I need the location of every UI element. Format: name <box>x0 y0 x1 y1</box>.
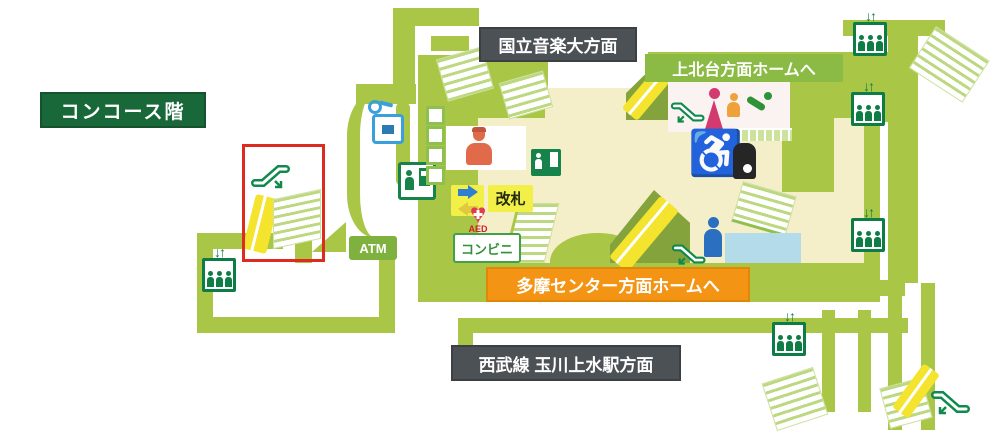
elevator-icon: ↓↑ <box>202 246 236 292</box>
path-segment <box>875 280 905 296</box>
elevator-direction-arrows: ↓↑ <box>865 10 875 22</box>
floor-structure <box>431 36 469 51</box>
convenience-store-label: コンビニ <box>453 233 521 263</box>
station-staff-icon <box>466 127 492 165</box>
platform-banner-kamikitadai: 上北台方面ホームへ <box>645 54 843 82</box>
path-segment <box>858 310 871 412</box>
station-concourse-map: ↓↑ ↓↑ ↓↑ ↓↑ ↓↑ <box>0 0 998 441</box>
elevator-icon: ↓↑ <box>853 10 887 56</box>
heart-icon: ♥ <box>470 202 487 226</box>
elevator-icon: ↓↑ <box>851 206 885 252</box>
platform-banner-tama-center: 多摩センター方面ホームへ <box>486 267 750 302</box>
ticket-machine-icon <box>531 149 561 176</box>
elevator-icon: ↓↑ <box>851 80 885 126</box>
elevator-icon: ↓↑ <box>772 310 806 356</box>
highlight-box <box>242 144 325 262</box>
cross-icon <box>474 210 483 219</box>
ticket-gate-label: 改札 <box>488 185 533 212</box>
coin-locker-icon <box>368 98 408 144</box>
aed-icon: ♥ AED <box>462 202 494 234</box>
escalator-icon <box>930 382 974 422</box>
destination-label-seibu-line: 西武線 玉川上水駅方面 <box>451 345 681 381</box>
ticket-gate-pillar <box>426 166 445 185</box>
floor-title: コンコース階 <box>40 92 206 128</box>
mens-restroom-icon <box>704 217 722 257</box>
destination-label-music-college: 国立音楽大方面 <box>479 27 637 62</box>
baby-care-icon <box>746 92 772 118</box>
elevator-direction-arrows: ↓↑ <box>784 310 794 322</box>
elevator-direction-arrows: ↓↑ <box>863 80 873 92</box>
path-segment <box>379 258 395 333</box>
mens-restroom-area <box>725 233 801 263</box>
path-segment <box>822 310 835 412</box>
path-segment <box>458 318 473 345</box>
path-segment <box>197 317 395 333</box>
ticket-gate-pillar <box>426 106 445 125</box>
path-segment <box>458 318 908 333</box>
atm-label: ATM <box>349 236 397 260</box>
womens-restroom-icon <box>703 88 725 130</box>
stairs <box>909 26 990 103</box>
child-icon <box>727 93 740 117</box>
ticket-gate-pillar <box>426 146 445 165</box>
ticket-gate-pillar <box>426 126 445 145</box>
photo-booth-icon <box>733 143 756 179</box>
arrow-right-icon <box>458 185 478 199</box>
stairs <box>762 367 829 431</box>
elevator-direction-arrows: ↓↑ <box>214 246 224 258</box>
elevator-direction-arrows: ↓↑ <box>863 206 873 218</box>
